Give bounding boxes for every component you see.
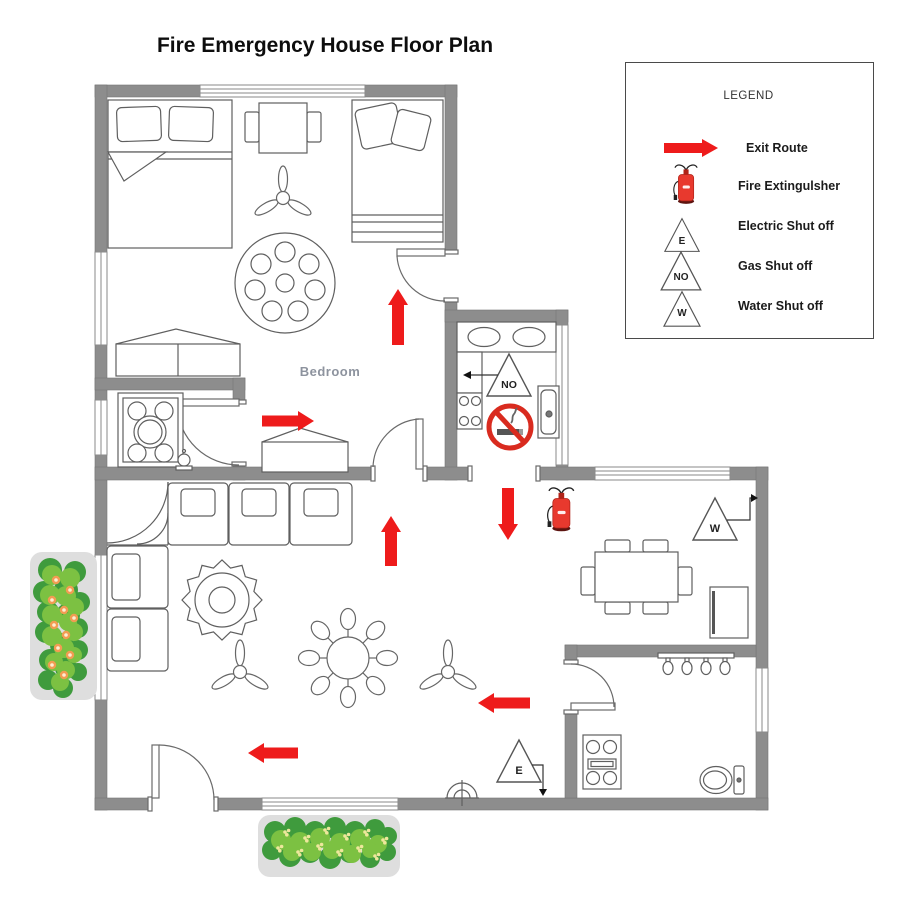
legend-symbol-no: NO xyxy=(674,272,689,283)
water-shutoff-symbol: W xyxy=(710,523,720,535)
dining-cabinet xyxy=(710,587,748,638)
single-bed xyxy=(352,100,443,242)
ceiling-fan-living-right xyxy=(418,640,478,692)
window-utility-left xyxy=(95,400,107,455)
bedroom-label: Bedroom xyxy=(300,364,361,379)
exit-arrow-living-up xyxy=(381,516,401,566)
legend-label-electric-shutoff: Electric Shut off xyxy=(738,219,834,233)
legend-symbol-w: W xyxy=(677,308,686,319)
hedge-bottom xyxy=(258,815,400,877)
ceiling-fan-living-left xyxy=(210,640,270,692)
kitchen-sink xyxy=(538,386,559,438)
door-hall-to-living xyxy=(371,419,427,482)
ceiling-fan-bedroom xyxy=(253,166,313,218)
page-title: Fire Emergency House Floor Plan xyxy=(95,34,555,58)
legend-label-gas-shutoff: Gas Shut off xyxy=(738,259,812,273)
door-bedroom-exit xyxy=(397,249,459,302)
hall-chest xyxy=(262,428,348,472)
toilet xyxy=(700,766,744,794)
water-shutoff-connector xyxy=(727,494,758,520)
dining-table-set xyxy=(581,540,692,614)
window-dining-top xyxy=(595,467,730,480)
bathroom-washer xyxy=(583,735,621,789)
fire-extinguisher-plan xyxy=(548,488,574,531)
no-smoking-sign xyxy=(489,406,531,448)
round-table xyxy=(235,233,335,333)
exit-arrow-entry-left xyxy=(248,743,298,763)
legend-icons xyxy=(661,139,718,326)
dresser xyxy=(116,329,240,376)
bathroom-light-bar xyxy=(658,653,734,675)
window-bedroom-top xyxy=(200,85,365,97)
exit-arrow-kitchen-down xyxy=(498,488,518,540)
utility-washer xyxy=(118,393,183,467)
double-bed xyxy=(108,100,232,248)
exit-arrow-hall-right xyxy=(262,411,314,431)
door-bathroom xyxy=(563,660,615,714)
hedge-left xyxy=(30,552,97,700)
legend-title: LEGEND xyxy=(625,90,872,102)
door-front-entrance xyxy=(148,745,218,812)
legend-label-exit-route: Exit Route xyxy=(746,141,808,155)
mandala-coffee-table xyxy=(182,560,262,640)
bedroom-table-chairs xyxy=(245,103,321,153)
gas-shutoff-symbol: NO xyxy=(501,379,517,391)
window-bedroom-left xyxy=(95,252,107,345)
window-living-bottom xyxy=(262,798,398,810)
chandelier xyxy=(299,609,398,708)
exit-route-arrow-icon xyxy=(664,139,718,157)
floor-plan-canvas: Fire Emergency House Floor Plan LEGEND E… xyxy=(0,0,900,924)
legend-symbol-e: E xyxy=(679,236,686,247)
exit-arrow-bedroom-up xyxy=(388,289,408,345)
fire-extinguisher-icon xyxy=(674,165,697,204)
window-bathroom-right xyxy=(756,668,768,732)
gas-shutoff-icon xyxy=(661,252,701,290)
floor-plan-drawing xyxy=(0,0,900,924)
kitchen-passage xyxy=(468,465,540,482)
electric-shutoff-symbol: E xyxy=(515,765,522,777)
legend-label-water-shutoff: Water Shut off xyxy=(738,299,823,313)
kitchen-stove xyxy=(457,393,482,429)
legend-label-fire-extinguisher: Fire Extingulsher xyxy=(738,179,840,193)
exit-arrow-mid-left xyxy=(478,693,530,713)
